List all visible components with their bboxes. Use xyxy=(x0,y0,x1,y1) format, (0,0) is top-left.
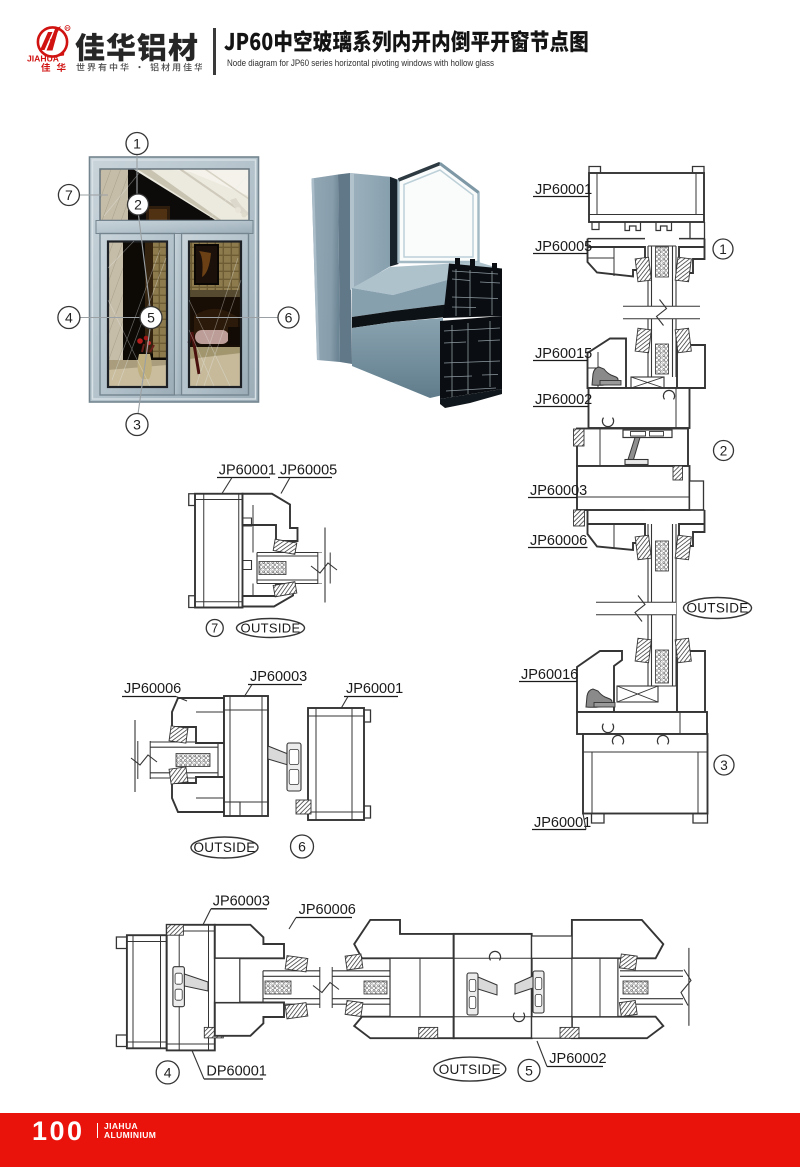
svg-text:2: 2 xyxy=(134,197,142,213)
svg-text:7: 7 xyxy=(65,187,73,203)
svg-text:5: 5 xyxy=(147,310,155,326)
svg-text:3: 3 xyxy=(133,417,141,433)
svg-text:JP60005: JP60005 xyxy=(535,239,592,255)
svg-text:1: 1 xyxy=(719,242,727,257)
svg-text:JP60001: JP60001 xyxy=(219,463,276,479)
svg-text:JP60002: JP60002 xyxy=(549,1051,606,1067)
svg-text:3: 3 xyxy=(720,758,728,773)
svg-text:OUTSIDE: OUTSIDE xyxy=(241,621,301,636)
svg-text:JP60003: JP60003 xyxy=(213,894,270,910)
svg-text:1: 1 xyxy=(133,136,141,152)
svg-text:2: 2 xyxy=(720,443,728,458)
svg-text:6: 6 xyxy=(285,310,293,326)
svg-text:4: 4 xyxy=(65,310,73,326)
svg-text:JP60006: JP60006 xyxy=(299,902,356,918)
svg-text:JP60001: JP60001 xyxy=(534,815,591,831)
svg-text:7: 7 xyxy=(211,622,218,636)
svg-text:5: 5 xyxy=(525,1062,533,1078)
svg-text:JP60003: JP60003 xyxy=(250,669,307,685)
svg-text:JP60003: JP60003 xyxy=(530,483,587,499)
svg-text:JP60001: JP60001 xyxy=(535,182,592,198)
svg-text:JP60016: JP60016 xyxy=(521,667,578,683)
svg-text:OUTSIDE: OUTSIDE xyxy=(193,840,255,855)
svg-text:JP60005: JP60005 xyxy=(280,463,337,479)
svg-text:JP60001: JP60001 xyxy=(346,681,403,697)
svg-text:JP60006: JP60006 xyxy=(530,533,587,549)
svg-text:DP60001: DP60001 xyxy=(206,1064,266,1080)
svg-text:JP60015: JP60015 xyxy=(535,346,592,362)
svg-text:OUTSIDE: OUTSIDE xyxy=(439,1062,501,1077)
svg-text:OUTSIDE: OUTSIDE xyxy=(686,601,748,616)
svg-text:JP60002: JP60002 xyxy=(535,392,592,408)
svg-text:6: 6 xyxy=(298,839,306,855)
svg-text:4: 4 xyxy=(164,1064,172,1080)
svg-text:JP60006: JP60006 xyxy=(124,681,181,697)
